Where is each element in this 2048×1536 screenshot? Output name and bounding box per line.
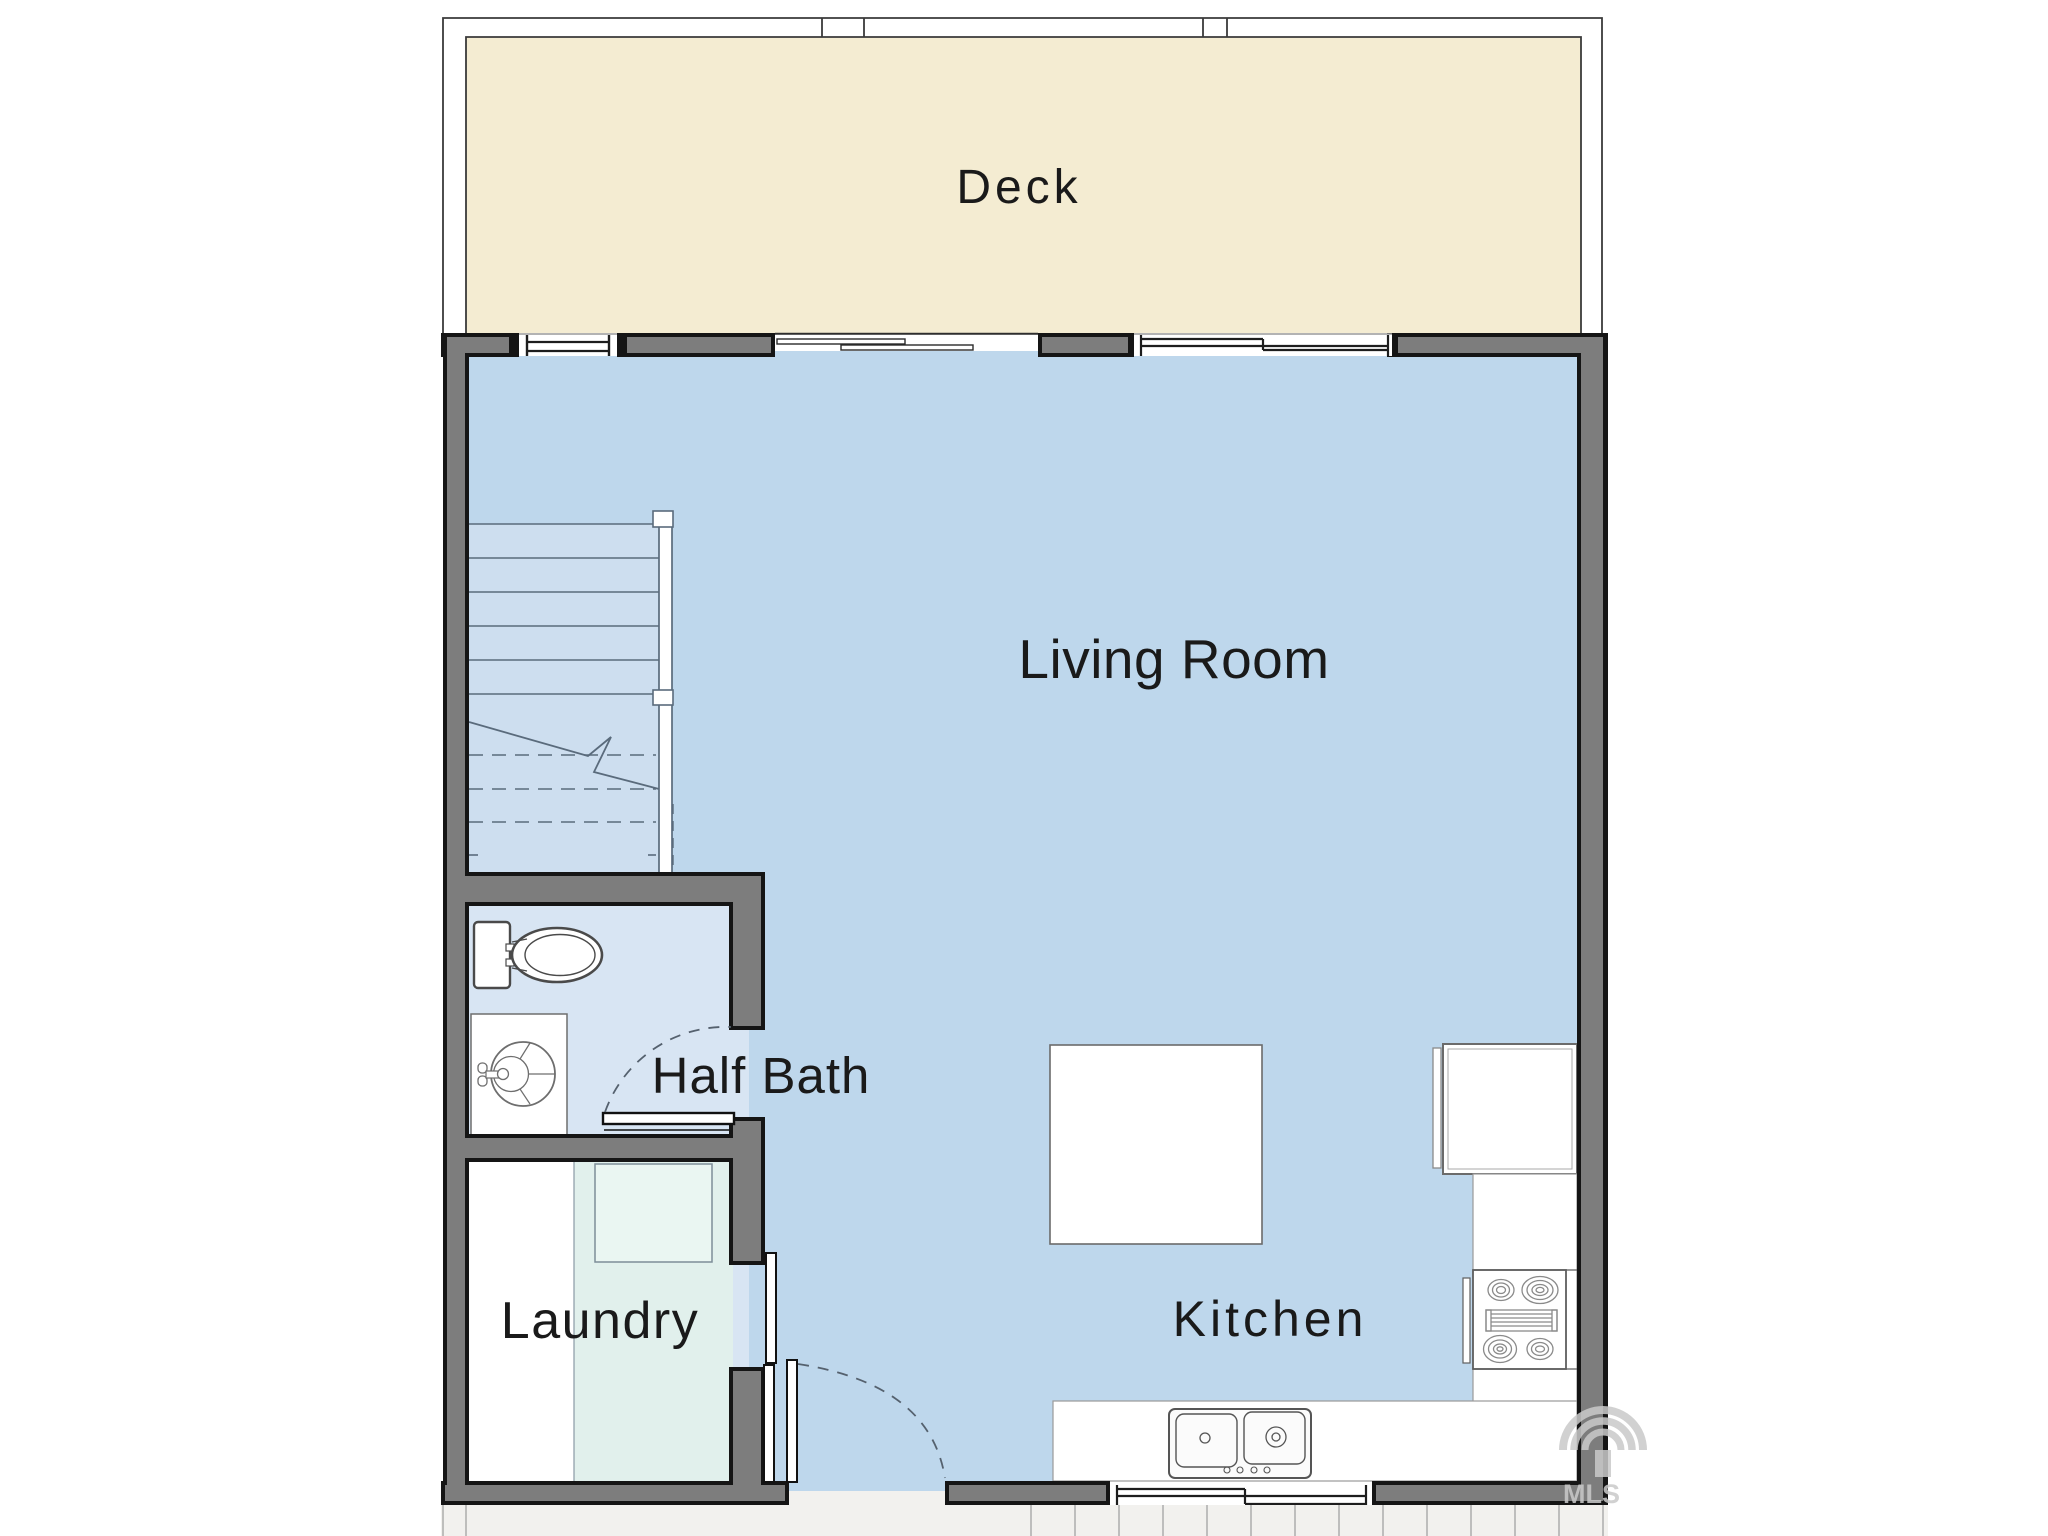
- svg-text:Kitchen: Kitchen: [1173, 1291, 1368, 1347]
- svg-text:Deck: Deck: [956, 161, 1081, 214]
- svg-text:MLS: MLS: [1563, 1479, 1620, 1509]
- svg-text:Half Bath: Half Bath: [652, 1047, 871, 1104]
- svg-text:Living Room: Living Room: [1018, 628, 1329, 690]
- svg-text:Laundry: Laundry: [501, 1292, 699, 1350]
